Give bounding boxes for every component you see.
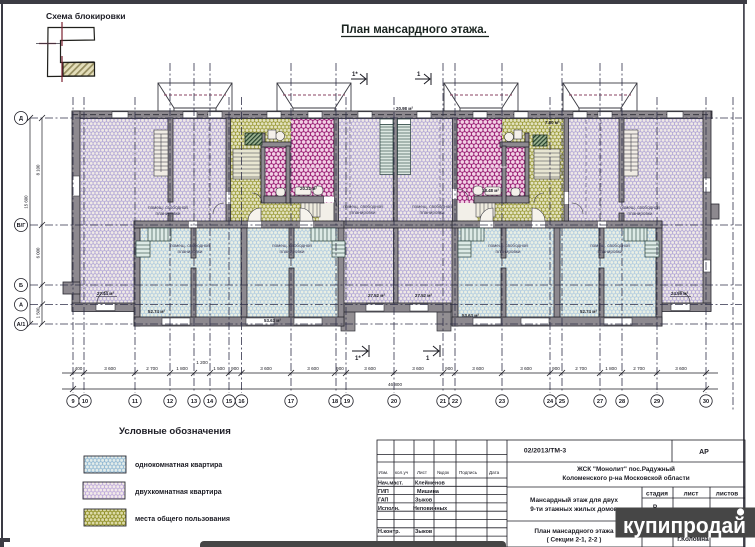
- svg-text:7.80 м²: 7.80 м²: [545, 120, 560, 125]
- svg-text:Подпись: Подпись: [459, 470, 478, 475]
- svg-text:53.63 м²: 53.63 м²: [462, 313, 479, 318]
- svg-text:Лист: Лист: [417, 470, 428, 475]
- svg-text:2 700: 2 700: [575, 366, 587, 371]
- svg-text:28: 28: [619, 399, 625, 405]
- svg-text:планировки: планировки: [598, 249, 623, 254]
- svg-text:1*: 1*: [352, 72, 358, 78]
- svg-text:52.74 м²: 52.74 м²: [148, 309, 165, 314]
- svg-text:помещ. свободной: помещ. свободной: [412, 203, 452, 209]
- svg-text:стадия: стадия: [646, 491, 668, 498]
- svg-text:Коломенского р-на Московской о: Коломенского р-на Московской области: [562, 474, 689, 482]
- svg-text:холл-прихожая: холл-прихожая: [297, 165, 324, 169]
- svg-text:3 600: 3 600: [364, 366, 376, 371]
- svg-text:Н.контр.: Н.контр.: [378, 529, 400, 535]
- svg-text:29: 29: [654, 399, 660, 405]
- svg-text:План мансардного этажа: План мансардного этажа: [534, 528, 614, 535]
- svg-text:900: 900: [552, 366, 560, 371]
- svg-text:АР: АР: [699, 449, 709, 456]
- svg-text:15: 15: [226, 399, 232, 405]
- svg-text:18.48 м²: 18.48 м²: [482, 188, 499, 193]
- svg-text:24: 24: [547, 399, 554, 405]
- svg-text:кол.уч: кол.уч: [395, 470, 409, 475]
- svg-text:27.44 м²: 27.44 м²: [97, 291, 114, 296]
- svg-text:23: 23: [499, 399, 505, 405]
- svg-text:1 500: 1 500: [36, 307, 41, 318]
- svg-text:14: 14: [207, 399, 214, 405]
- svg-text:52.74 м²: 52.74 м²: [580, 309, 597, 314]
- svg-text:15 600: 15 600: [24, 195, 29, 209]
- svg-text:1 800: 1 800: [605, 366, 617, 371]
- svg-text:3 600: 3 600: [260, 366, 272, 371]
- svg-text:27.52 м²: 27.52 м²: [415, 293, 432, 298]
- svg-text:однокомнатная квартира: однокомнатная квартира: [135, 462, 222, 469]
- svg-text:помещ. свободной: помещ. свободной: [170, 242, 210, 248]
- svg-text:помещ. свободной: помещ. свободной: [620, 204, 660, 210]
- svg-text:помещ. свободной: помещ. свободной: [343, 203, 383, 209]
- svg-text:1 800: 1 800: [176, 366, 188, 371]
- svg-text:Мансардный этаж для двух: Мансардный этаж для двух: [530, 496, 618, 504]
- svg-text:27.52 м²: 27.52 м²: [368, 293, 385, 298]
- svg-text:1 500: 1 500: [213, 366, 225, 371]
- svg-text:Изм.: Изм.: [379, 470, 389, 475]
- svg-text:Условные обозначения: Условные обозначения: [119, 426, 231, 437]
- svg-text:10: 10: [82, 399, 88, 405]
- svg-text:3 600: 3 600: [520, 366, 532, 371]
- svg-text:планировки: планировки: [628, 211, 653, 216]
- svg-text:План мансардного этажа.: План мансардного этажа.: [341, 24, 487, 36]
- svg-text:3 600: 3 600: [307, 366, 319, 371]
- svg-text:( Секции 2-1, 2-2 ): ( Секции 2-1, 2-2 ): [547, 537, 602, 544]
- svg-text:помещ. свободной: помещ. свободной: [488, 242, 528, 248]
- svg-text:20: 20: [391, 399, 397, 405]
- svg-text:Б: Б: [19, 283, 23, 289]
- svg-text:помещ. свободной: помещ. свободной: [272, 242, 312, 248]
- svg-text:помещ. свободной: помещ. свободной: [148, 204, 188, 210]
- svg-text:планировки: планировки: [156, 211, 181, 216]
- svg-text:22: 22: [452, 399, 458, 405]
- svg-text:холл-прихожая: холл-прихожая: [481, 165, 508, 169]
- svg-text:Исполн.: Исполн.: [378, 506, 400, 512]
- svg-text:8 100: 8 100: [36, 164, 41, 175]
- svg-text:Д: Д: [19, 116, 23, 122]
- svg-text:листов: листов: [716, 491, 738, 498]
- svg-text:помещ. свободной: помещ. свободной: [590, 242, 630, 248]
- svg-text:3 600: 3 600: [104, 366, 116, 371]
- svg-text:места общего пользования: места общего пользования: [135, 515, 230, 523]
- svg-text:2 700: 2 700: [146, 366, 158, 371]
- svg-text:20.21 м²: 20.21 м²: [300, 186, 317, 191]
- svg-text:6 000: 6 000: [36, 247, 41, 258]
- svg-text:02/2013/ТМ-3: 02/2013/ТМ-3: [524, 448, 567, 455]
- svg-text:53.63 м²: 53.63 м²: [264, 318, 281, 323]
- svg-text:3 600: 3 600: [675, 366, 687, 371]
- svg-text:9-ти этажных жилых домов: 9-ти этажных жилых домов: [530, 506, 618, 513]
- svg-text:купипродай: купипродай: [623, 513, 746, 538]
- svg-text:12: 12: [167, 399, 173, 405]
- svg-text:19: 19: [344, 399, 350, 405]
- svg-text:9: 9: [71, 399, 74, 405]
- svg-text:21: 21: [440, 399, 446, 405]
- svg-text:30: 30: [703, 399, 709, 405]
- svg-text:27: 27: [597, 399, 603, 405]
- svg-text:46 800: 46 800: [388, 382, 402, 387]
- svg-text:3 600: 3 600: [472, 366, 484, 371]
- svg-text:Клейменов: Клейменов: [415, 480, 445, 487]
- svg-text:ГАП: ГАП: [378, 498, 389, 504]
- svg-text:17: 17: [288, 399, 294, 405]
- svg-text:Нач.маст.: Нач.маст.: [378, 481, 403, 487]
- svg-text:планировки: планировки: [280, 249, 305, 254]
- svg-text:планировки: планировки: [496, 249, 521, 254]
- svg-text:Неповинных: Неповинных: [413, 506, 447, 512]
- svg-text:16: 16: [238, 399, 244, 405]
- svg-text:3 600: 3 600: [412, 366, 424, 371]
- svg-text:11: 11: [132, 399, 138, 405]
- svg-text:двухкомнатная квартира: двухкомнатная квартира: [135, 489, 222, 496]
- svg-text:Зыков: Зыков: [415, 498, 433, 504]
- svg-text:900: 900: [445, 366, 453, 371]
- svg-text:25: 25: [559, 399, 565, 405]
- svg-text:Мишина: Мишина: [417, 489, 440, 495]
- svg-text:2 700: 2 700: [633, 366, 645, 371]
- svg-text:1 200: 1 200: [196, 360, 208, 365]
- svg-text:Зыков: Зыков: [415, 529, 433, 535]
- svg-text:1*: 1*: [355, 356, 361, 362]
- svg-text:13: 13: [191, 399, 197, 405]
- svg-text:20.98 м²: 20.98 м²: [396, 106, 413, 111]
- svg-text:ЖСК "Монолит" пос.Радужный: ЖСК "Монолит" пос.Радужный: [576, 465, 675, 473]
- svg-text:планировки: планировки: [420, 210, 445, 215]
- svg-text:планировки: планировки: [178, 249, 203, 254]
- svg-text:В/Г: В/Г: [17, 223, 27, 229]
- svg-text:лист: лист: [684, 491, 699, 498]
- svg-text:24.59 м²: 24.59 м²: [671, 291, 688, 296]
- svg-text:900: 900: [231, 366, 239, 371]
- svg-text:Схема блокировки: Схема блокировки: [46, 11, 126, 21]
- svg-text:А/1: А/1: [17, 322, 26, 328]
- svg-text:№док: №док: [437, 470, 450, 475]
- svg-text:А: А: [19, 303, 23, 309]
- svg-text:ГИП: ГИП: [378, 489, 389, 495]
- svg-text:18: 18: [332, 399, 338, 405]
- svg-text:планировки: планировки: [351, 210, 376, 215]
- svg-text:Дата: Дата: [489, 470, 500, 475]
